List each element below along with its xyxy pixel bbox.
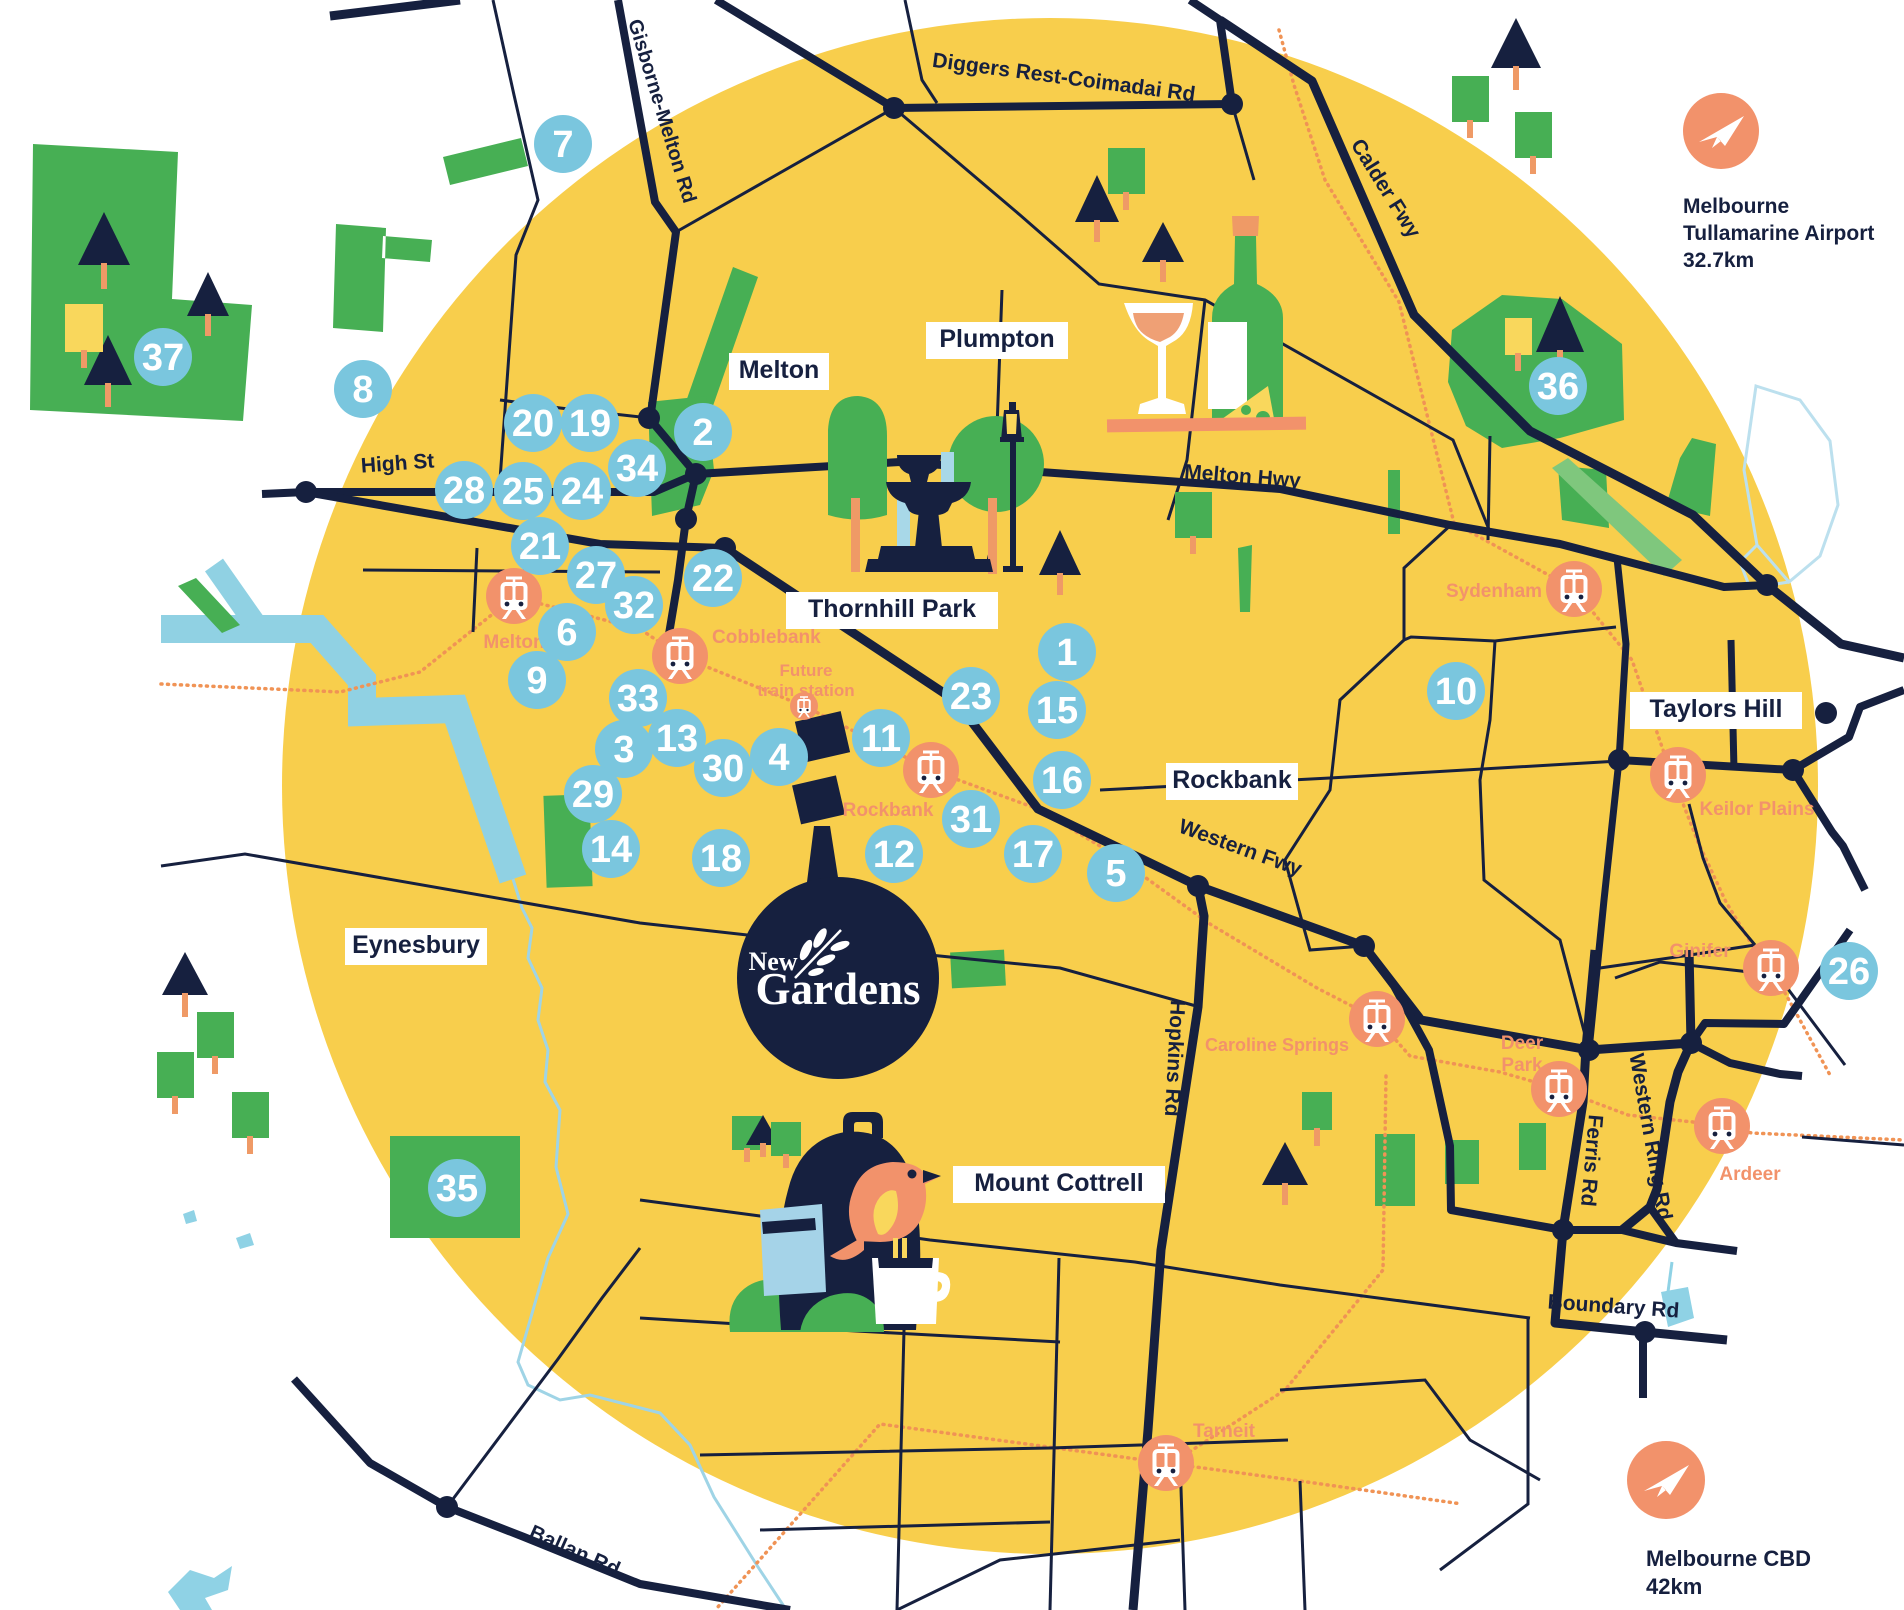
svg-text:13: 13: [656, 718, 698, 760]
svg-text:29: 29: [572, 774, 614, 816]
svg-text:Tullamarine Airport: Tullamarine Airport: [1683, 222, 1874, 245]
svg-text:23: 23: [950, 676, 992, 718]
svg-text:train station: train station: [757, 681, 854, 700]
svg-text:34: 34: [616, 448, 658, 490]
svg-text:Eynesbury: Eynesbury: [352, 931, 480, 959]
svg-text:1: 1: [1056, 632, 1077, 674]
svg-text:Plumpton: Plumpton: [939, 325, 1054, 353]
svg-text:24: 24: [561, 471, 603, 513]
svg-text:Melbourne CBD: Melbourne CBD: [1646, 1546, 1811, 1571]
svg-text:21: 21: [519, 526, 561, 568]
svg-text:28: 28: [443, 470, 485, 512]
svg-text:Rockbank: Rockbank: [1172, 766, 1292, 794]
svg-text:4: 4: [768, 737, 789, 779]
svg-text:5: 5: [1105, 853, 1126, 895]
svg-text:30: 30: [702, 748, 744, 790]
svg-text:3: 3: [613, 729, 634, 771]
svg-text:33: 33: [617, 678, 659, 720]
svg-text:14: 14: [590, 829, 632, 871]
svg-text:32: 32: [613, 585, 655, 627]
svg-text:Tarneit: Tarneit: [1193, 1421, 1256, 1442]
svg-text:Melton: Melton: [739, 356, 820, 384]
svg-text:Taylors Hill: Taylors Hill: [1650, 695, 1783, 723]
svg-text:Sydenham: Sydenham: [1446, 581, 1542, 602]
svg-text:Melbourne: Melbourne: [1683, 195, 1789, 218]
svg-text:6: 6: [556, 612, 577, 654]
svg-text:17: 17: [1012, 834, 1054, 876]
svg-text:16: 16: [1041, 760, 1083, 802]
svg-text:42km: 42km: [1646, 1574, 1702, 1599]
svg-text:11: 11: [861, 718, 901, 760]
svg-text:Caroline Springs: Caroline Springs: [1205, 1035, 1349, 1055]
svg-text:Ardeer: Ardeer: [1719, 1164, 1781, 1185]
svg-text:26: 26: [1828, 951, 1870, 993]
svg-text:Cobblebank: Cobblebank: [712, 627, 821, 648]
svg-text:35: 35: [436, 1168, 478, 1210]
svg-text:Mount Cottrell: Mount Cottrell: [974, 1169, 1143, 1197]
svg-text:Future: Future: [780, 661, 833, 680]
svg-text:32.7km: 32.7km: [1683, 249, 1754, 272]
svg-text:12: 12: [873, 834, 915, 876]
svg-text:36: 36: [1537, 366, 1579, 408]
svg-text:18: 18: [700, 838, 742, 880]
svg-text:Deer: Deer: [1501, 1033, 1544, 1054]
svg-text:37: 37: [142, 337, 184, 379]
svg-text:Thornhill Park: Thornhill Park: [808, 595, 976, 623]
svg-text:22: 22: [692, 558, 734, 600]
svg-text:15: 15: [1036, 690, 1078, 732]
svg-text:Melton: Melton: [483, 632, 544, 653]
svg-text:9: 9: [526, 660, 547, 702]
svg-text:Ginifer: Ginifer: [1669, 941, 1731, 962]
svg-text:Park: Park: [1501, 1055, 1543, 1076]
svg-text:Keilor Plains: Keilor Plains: [1699, 799, 1814, 820]
svg-text:25: 25: [502, 471, 544, 513]
svg-text:2: 2: [692, 412, 713, 454]
svg-text:Gardens: Gardens: [755, 964, 920, 1014]
svg-text:20: 20: [512, 403, 554, 445]
svg-text:7: 7: [552, 124, 573, 166]
svg-text:10: 10: [1435, 671, 1477, 713]
svg-text:19: 19: [569, 403, 611, 445]
svg-text:8: 8: [352, 369, 373, 411]
svg-text:31: 31: [950, 799, 992, 841]
svg-text:Rockbank: Rockbank: [843, 800, 934, 821]
